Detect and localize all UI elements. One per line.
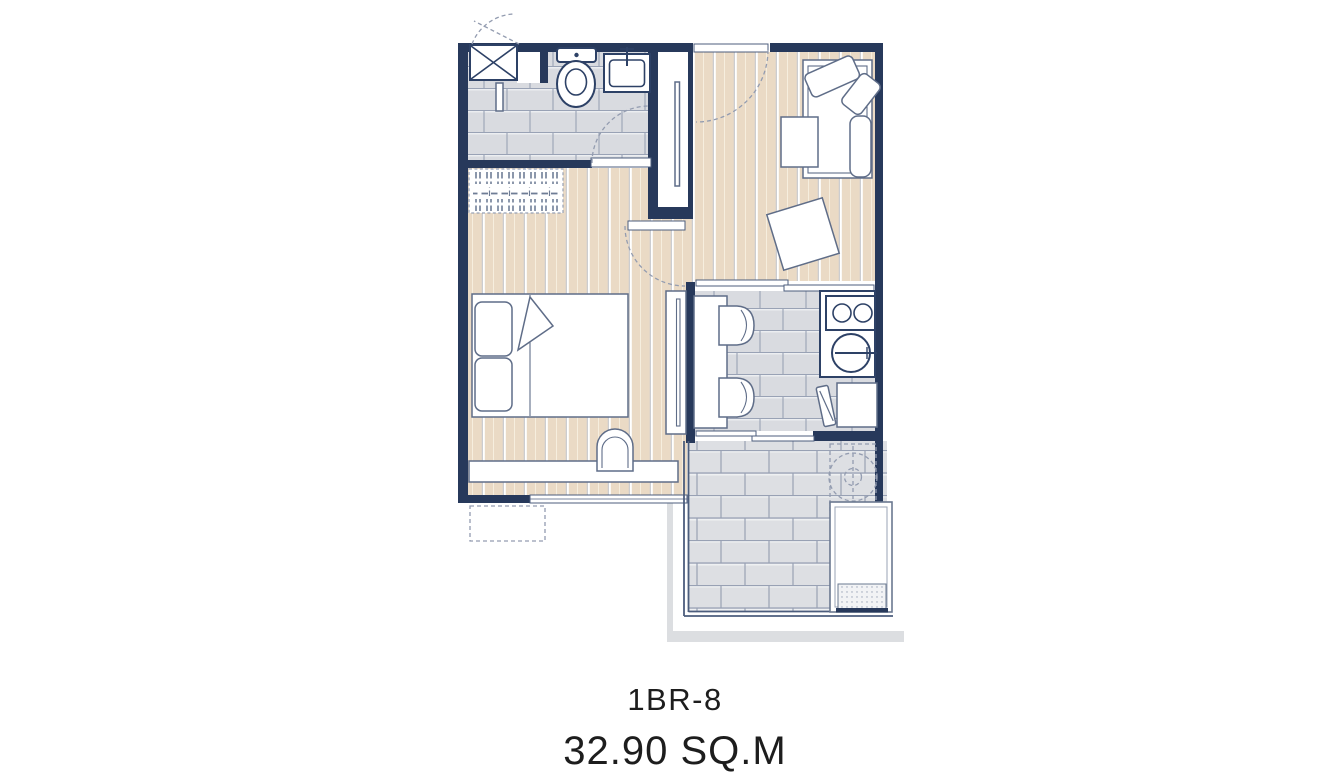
wall-top-right xyxy=(770,43,883,52)
balcony-sliding-door xyxy=(696,431,814,441)
bedroom-door-leaf xyxy=(628,221,685,230)
wall-wardrobe-east xyxy=(688,43,693,219)
ac-ledge-icon xyxy=(830,502,892,613)
toilet-icon xyxy=(557,48,596,107)
bar-stool-icon xyxy=(719,378,754,417)
floor-plan-drawing xyxy=(0,0,1342,660)
kitchen-pass-counter xyxy=(696,280,874,291)
service-niche xyxy=(517,52,540,83)
wall-left xyxy=(458,43,468,503)
floor-plan-page: 1BR-8 32.90 SQ.M xyxy=(0,0,1342,754)
bar-stool-icon xyxy=(719,306,754,345)
dining-table-icon xyxy=(837,383,877,427)
entrance-door-leaf xyxy=(694,44,768,52)
shower-partition-icon xyxy=(496,83,503,111)
coffee-table-icon xyxy=(781,117,818,167)
ac-louver xyxy=(838,584,886,610)
wall-kitchen-south xyxy=(813,431,875,441)
desk-chair-icon xyxy=(597,429,633,471)
bed-icon xyxy=(472,294,628,417)
planter-ledge xyxy=(470,506,545,541)
ac-ledge-edge xyxy=(836,608,888,613)
bathroom-door-leaf xyxy=(591,158,651,167)
unit-name-label: 1BR-8 xyxy=(440,682,910,718)
wardrobe-mirror xyxy=(675,82,680,186)
wall-wardrobe-cap xyxy=(648,207,693,219)
bathroom-sink-icon xyxy=(604,47,650,92)
wall-bathroom-south xyxy=(458,160,592,168)
wall-bedroom-south xyxy=(458,495,532,503)
bedroom-window xyxy=(530,495,687,503)
sliding-door-icon xyxy=(666,291,686,434)
wall-pier xyxy=(540,52,548,83)
washer-door-swing xyxy=(472,14,519,44)
hanging-clothes-icon xyxy=(469,169,563,213)
unit-area-label: 32.90 SQ.M xyxy=(440,729,910,774)
desk-console-icon xyxy=(469,461,678,482)
pillow-icon xyxy=(475,358,512,411)
wall-right xyxy=(875,43,883,507)
pillow-icon xyxy=(475,302,512,356)
stove-icon xyxy=(826,296,875,330)
wardrobe-icon xyxy=(658,52,688,207)
